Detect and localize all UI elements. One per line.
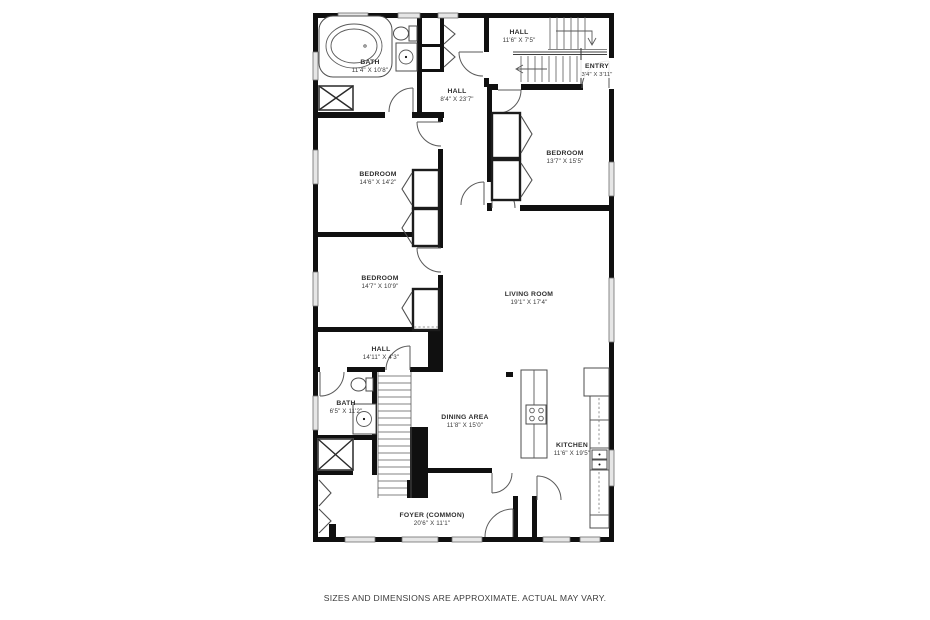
toilet-top-icon bbox=[394, 26, 418, 41]
door-bedroom-upper bbox=[417, 122, 441, 146]
door-corridor-living bbox=[461, 182, 484, 205]
room-label-dining: DINING AREA bbox=[441, 414, 488, 421]
room-label-bedroom-right: BEDROOM bbox=[546, 150, 583, 157]
room-dims-hall-lower: 14'11" X 4'3" bbox=[363, 354, 399, 361]
shower-lower-icon bbox=[318, 439, 353, 470]
room-dims-living-room: 19'1" X 17'4" bbox=[511, 299, 548, 306]
room-label-foyer: FOYER (COMMON) bbox=[399, 512, 464, 519]
room-label-hall-main: HALL bbox=[447, 88, 466, 95]
room-dims-foyer: 20'6" X 11'1" bbox=[414, 520, 450, 527]
room-dims-entry: 3'4" X 3'11" bbox=[582, 72, 613, 78]
staircase-lower-icon bbox=[378, 372, 411, 498]
room-dims-hall-main: 8'4" X 23'7" bbox=[440, 96, 473, 103]
room-label-hall-lower: HALL bbox=[371, 346, 390, 353]
room-label-bath-lower: BATH bbox=[336, 400, 355, 407]
kitchen-counter bbox=[590, 396, 609, 528]
door-hall-top bbox=[459, 52, 483, 76]
disclaimer-text: SIZES AND DIMENSIONS ARE APPROXIMATE. AC… bbox=[324, 593, 607, 603]
door-bath-top bbox=[389, 88, 413, 112]
room-label-entry: ENTRY bbox=[585, 63, 609, 70]
closet-bedroom-right bbox=[492, 113, 532, 200]
room-dims-bath-lower: 6'5" X 11'2" bbox=[330, 408, 363, 415]
room-label-hall-top: HALL bbox=[509, 29, 528, 36]
refrigerator-icon bbox=[584, 368, 609, 396]
room-label-bedroom-upper: BEDROOM bbox=[359, 171, 396, 178]
room-dims-hall-top: 11'6" X 7'5" bbox=[503, 37, 536, 44]
shower-top-icon bbox=[319, 86, 353, 110]
closet-bedroom-lower bbox=[402, 289, 439, 330]
sink-top-icon bbox=[396, 43, 417, 71]
floor-plan-canvas: BATH 11'4" X 10'8" HALL 11'6" X 7'5" ENT… bbox=[0, 0, 930, 620]
door-bedroom-right bbox=[498, 90, 521, 113]
room-dims-kitchen: 11'6" X 19'5" bbox=[554, 450, 590, 457]
room-dims-bedroom-lower: 14'7" X 10'9" bbox=[362, 283, 399, 290]
room-dims-dining: 11'8" X 15'0" bbox=[447, 422, 483, 429]
room-dims-bath-top: 11'4" X 10'8" bbox=[352, 67, 388, 74]
door-vestibule-kitchen bbox=[537, 476, 561, 500]
toilet-lower-icon bbox=[351, 378, 373, 391]
floor-plan-page: BATH 11'4" X 10'8" HALL 11'6" X 7'5" ENT… bbox=[0, 0, 930, 620]
door-foyer-vestibule bbox=[485, 509, 513, 537]
room-label-kitchen: KITCHEN bbox=[556, 442, 588, 449]
room-label-bedroom-lower: BEDROOM bbox=[361, 275, 398, 282]
door-dining-foyer bbox=[492, 473, 512, 493]
room-label-living-room: LIVING ROOM bbox=[505, 291, 554, 298]
stove-icon bbox=[526, 405, 546, 424]
room-dims-bedroom-upper: 14'6" X 14'2" bbox=[360, 179, 397, 186]
closet-hall-upper bbox=[444, 25, 455, 67]
door-bedroom-lower bbox=[417, 248, 441, 272]
room-dims-bedroom-right: 13'7" X 15'5" bbox=[547, 158, 584, 165]
door-bath-lower bbox=[320, 372, 344, 396]
room-label-bath-top: BATH bbox=[360, 59, 379, 66]
kitchen-sink-icon bbox=[592, 450, 607, 469]
doors bbox=[320, 52, 609, 537]
